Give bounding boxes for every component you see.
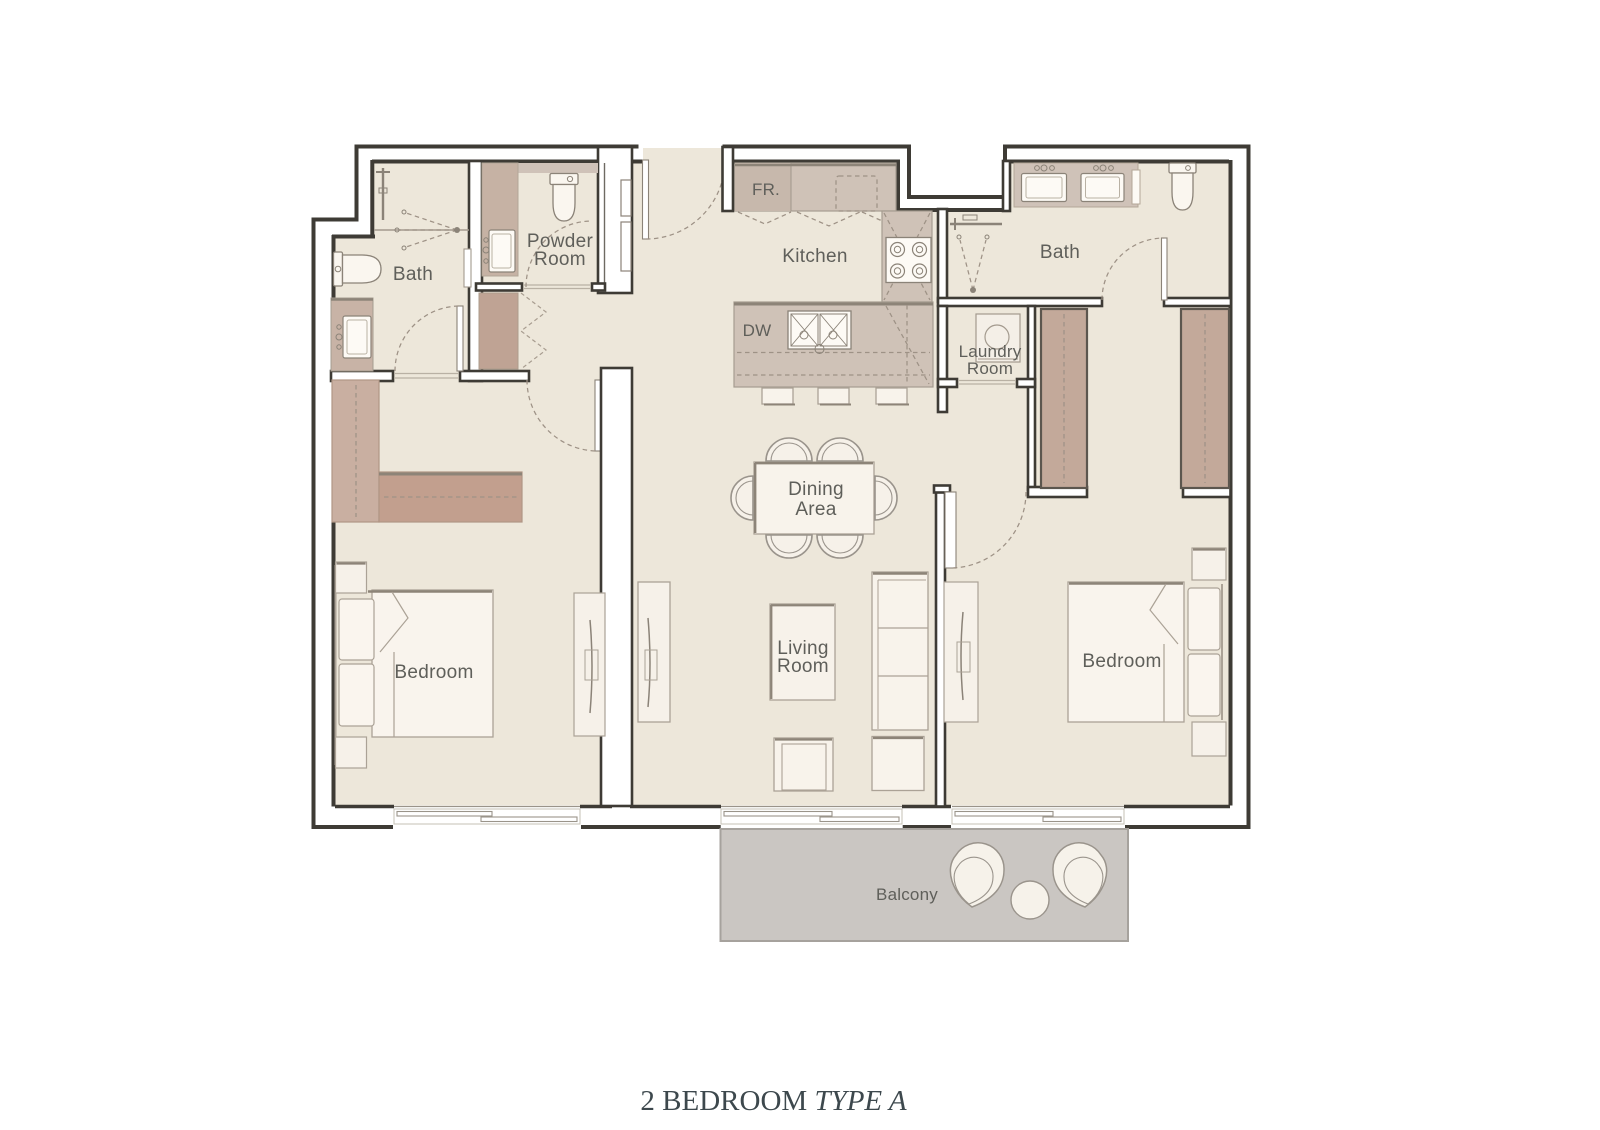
svg-text:FR.: FR.	[752, 180, 780, 199]
svg-text:DW: DW	[743, 321, 772, 340]
svg-text:Bath: Bath	[393, 264, 433, 285]
svg-text:Area: Area	[795, 499, 836, 520]
svg-text:Balcony: Balcony	[876, 885, 938, 904]
svg-text:Room: Room	[534, 249, 586, 270]
svg-text:Bedroom: Bedroom	[394, 662, 473, 683]
svg-text:Bath: Bath	[1040, 242, 1080, 263]
svg-text:Room: Room	[967, 359, 1013, 378]
svg-text:Bedroom: Bedroom	[1082, 651, 1161, 672]
svg-text:Room: Room	[777, 656, 829, 677]
svg-text:Dining: Dining	[788, 479, 844, 500]
svg-text:Kitchen: Kitchen	[782, 246, 847, 267]
